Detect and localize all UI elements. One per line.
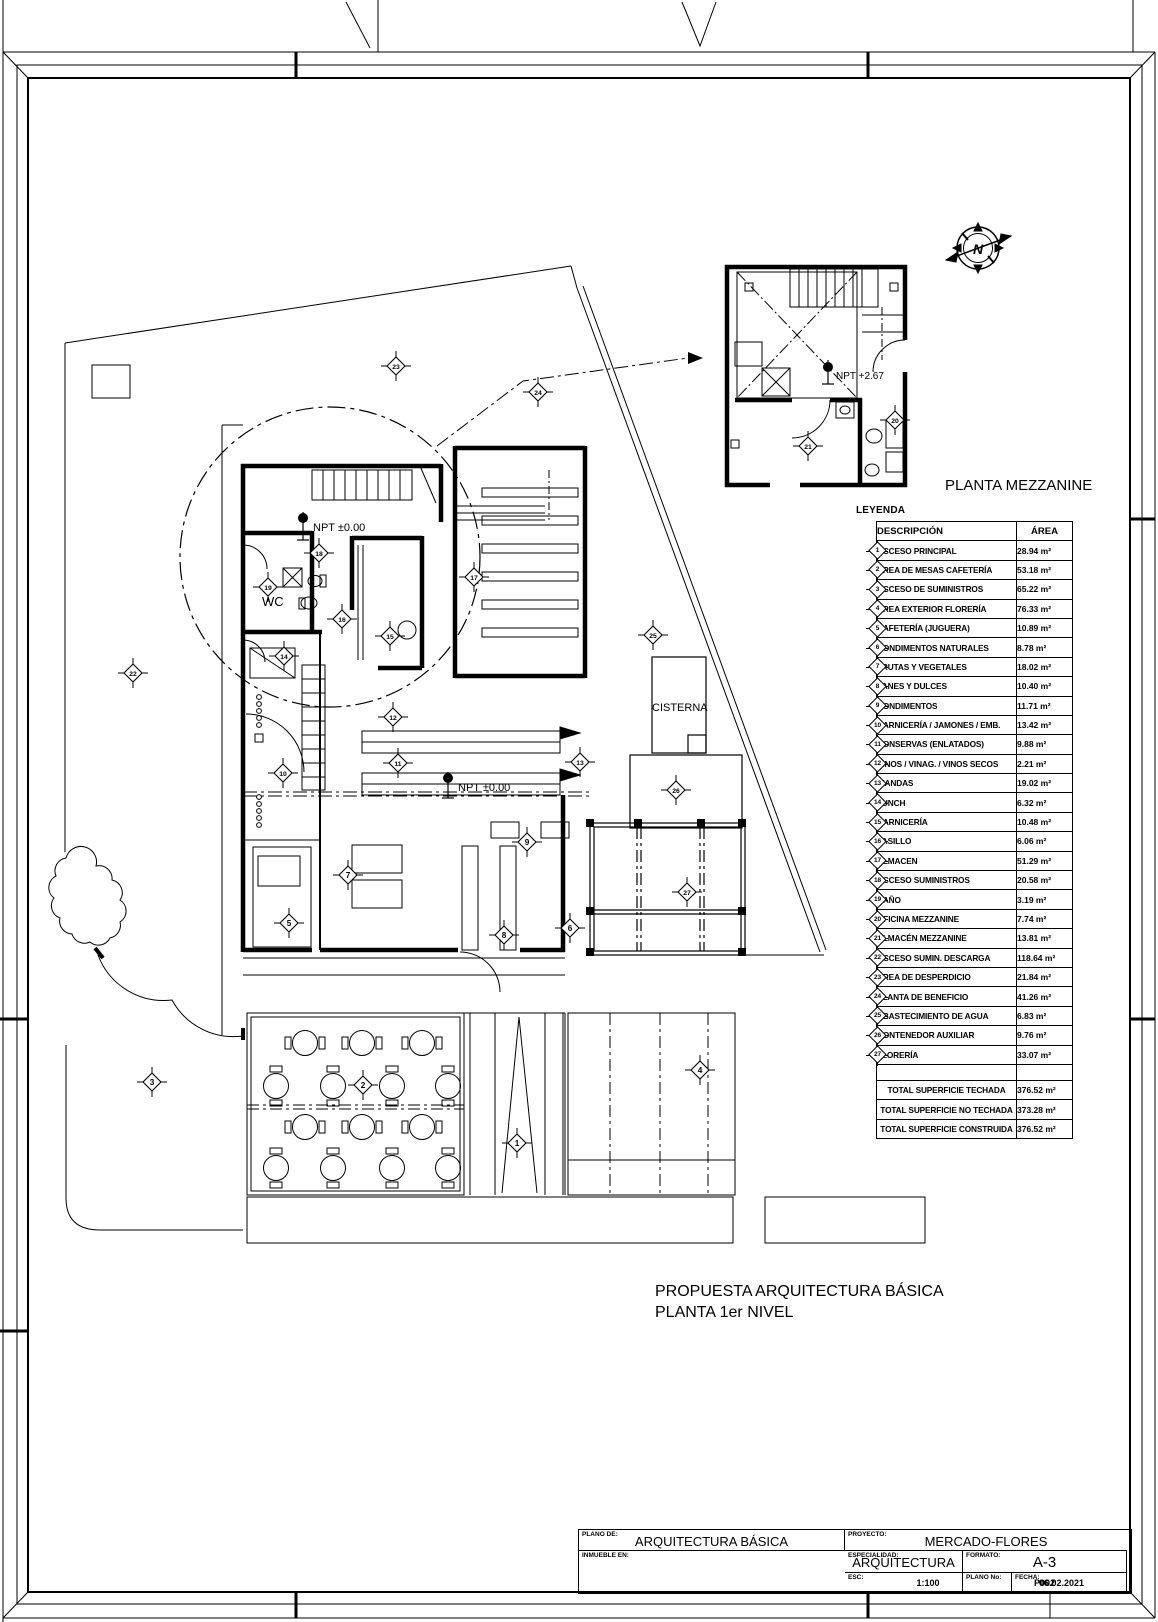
legend-row: 27FLORERÍA33.07 m² [877,1045,1073,1064]
legend-item-label: OFICINA MEZZANINE [877,914,959,924]
svg-text:26: 26 [672,788,680,795]
legend-item-label: PLANTA DE BENEFICIO [877,992,968,1002]
svg-text:18: 18 [315,551,323,558]
legend-item-area: 6.06 m² [1017,832,1073,851]
proyecto-value: MERCADO-FLORES [845,1534,1127,1549]
room-marker-5: 5 [274,908,304,938]
legend-total-row: TOTAL SUPERFICIE CONSTRUIDA376.52 m² [877,1119,1073,1138]
legend-table: DESCRIPCIÓN ÁREA 1ACCESO PRINCIPAL28.94 … [876,521,1073,1139]
plano-de-value: ARQUITECTURA BÁSICA [579,1534,844,1549]
svg-text:20: 20 [891,418,899,425]
legend-item-area: 65.22 m² [1017,580,1073,599]
legend-item-area: 13.42 m² [1017,715,1073,734]
legend-total-area: 373.28 m² [1017,1100,1073,1119]
site-boundary [49,266,826,1230]
legend-item-label: CARNICERÍA / JAMONES / EMB. [877,720,1000,730]
svg-text:11: 11 [394,761,401,768]
legend-item-label: VINOS / VINAG. / VINOS SECOS [877,759,998,769]
room-marker-1: 1 [502,1128,532,1158]
legend-col-descripcion: DESCRIPCIÓN [877,522,1017,541]
svg-text:24: 24 [534,390,542,397]
column-squares [586,819,746,956]
room-marker-3: 3 [137,1067,167,1097]
legend-item-label: CAFETERÍA (JUGUERA) [877,623,970,633]
legend-item-label: ALMACÉN MEZZANINE [877,933,967,943]
svg-text:1: 1 [515,1139,520,1148]
room-marker-4: 4 [685,1055,715,1085]
legend-item-label: ACCESO DE SUMINISTROS [877,584,983,594]
legend-item-area: 2.21 m² [1017,754,1073,773]
npt-label-mezzanine: NPT +2.67 [836,371,884,382]
legend-item-label: CONSERVAS (ENLATADOS) [877,739,984,749]
legend-item-area: 76.33 m² [1017,599,1073,618]
legend-item-area: 21.84 m² [1017,967,1073,986]
legend-item-area: 51.29 m² [1017,851,1073,870]
svg-text:15: 15 [386,634,394,641]
svg-text:2: 2 [361,1081,366,1090]
leader-arrow-icon [688,352,703,364]
room-marker-21: 21 [793,431,823,461]
legend-item-area: 41.26 m² [1017,987,1073,1006]
room-marker-8: 8 [489,920,519,950]
legend-item-area: 6.32 m² [1017,793,1073,812]
legend-row: 19BAÑO3.19 m² [877,890,1073,909]
main-plan-title-line1: PROPUESTA ARQUITECTURA BÁSICA [655,1281,944,1302]
svg-text:4: 4 [698,1066,703,1075]
legend-header-row: DESCRIPCIÓN ÁREA [877,522,1073,541]
legend-item-label: FRUTAS Y VEGETALES [877,662,967,672]
legend-row: 14LUNCH6.32 m² [877,793,1073,812]
room-marker-12: 12 [378,702,408,732]
svg-text:22: 22 [129,671,137,678]
title-block-esc-fecha: ESC: 1:100 FECHA: 06.02.2021 [845,1573,963,1591]
legend-item-area: 10.89 m² [1017,618,1073,637]
legend-total-label: TOTAL SUPERFICIE NO TECHADA [877,1100,1017,1119]
drawing-sheet: 1234567891011121314151617181922232425262… [0,0,1158,1622]
legend-row: 3ACCESO DE SUMINISTROS65.22 m² [877,580,1073,599]
svg-text:16: 16 [338,617,346,624]
stall-arrow-icon [560,769,580,781]
legend-total-area: 376.52 m² [1017,1080,1073,1099]
svg-text:14: 14 [280,654,288,661]
room-marker-15: 15 [375,621,405,651]
room-marker-2: 2 [348,1070,378,1100]
legend-item-area: 3.19 m² [1017,890,1073,909]
svg-text:7: 7 [346,871,351,880]
main-plan-title-line2: PLANTA 1er NIVEL [655,1302,944,1323]
room-marker-27: 27 [672,877,702,907]
npt-label-1: NPT ±0.00 [313,522,365,534]
legend-row: 10CARNICERÍA / JAMONES / EMB.13.42 m² [877,715,1073,734]
plano-no-value: P002 [963,1578,1126,1588]
legend-item-area: 18.02 m² [1017,657,1073,676]
legend-item-area: 20.58 m² [1017,871,1073,890]
svg-text:8: 8 [502,931,507,940]
building-walls [241,446,585,952]
legend-row: 22ACCESO SUMIN. DESCARGA118.64 m² [877,948,1073,967]
road-band [247,1197,733,1243]
title-block-plano-de: PLANO DE: ARQUITECTURA BÁSICA [579,1530,845,1551]
legend-item-label: ÁREA DE DESPERDICIO [877,972,971,982]
svg-text:19: 19 [264,585,272,592]
room-marker-23: 23 [381,351,411,381]
legend-item-area: 11.71 m² [1017,696,1073,715]
legend-row: 7FRUTAS Y VEGETALES18.02 m² [877,657,1073,676]
ramp-triangle [502,1017,537,1193]
svg-text:25: 25 [649,633,657,640]
legend-item-area: 118.64 m² [1017,948,1073,967]
legend-item-label: ÁREA EXTERIOR FLORERÍA [877,604,986,614]
legend-item-label: ACCESO PRINCIPAL [877,546,957,556]
legend-item-area: 7.74 m² [1017,909,1073,928]
legend-row: 13VIANDAS19.02 m² [877,774,1073,793]
mezzanine-plan-title: PLANTA MEZZANINE [945,477,1092,494]
building-fixtures [243,466,590,992]
legend-total-area: 376.52 m² [1017,1119,1073,1138]
room-marker-24: 24 [523,377,553,407]
title-block-proyecto: PROYECTO: MERCADO-FLORES [845,1530,1127,1551]
title-block: PLANO DE: ARQUITECTURA BÁSICA PROYECTO: … [578,1529,1132,1594]
legend-item-label: ÁREA DE MESAS CAFETERÍA [877,565,992,575]
room-marker-6: 6 [555,913,585,943]
legend-total-label: TOTAL SUPERFICIE CONSTRUIDA [877,1119,1017,1138]
legend-row: 9CONDIMENTOS11.71 m² [877,696,1073,715]
main-plan-title: PROPUESTA ARQUITECTURA BÁSICA PLANTA 1er… [655,1281,944,1323]
room-marker-26: 26 [661,775,691,805]
legend-row: 23ÁREA DE DESPERDICIO21.84 m² [877,967,1073,986]
legend-row: 4ÁREA EXTERIOR FLORERÍA76.33 m² [877,599,1073,618]
legend-item-area: 10.40 m² [1017,677,1073,696]
legend-row: 24PLANTA DE BENEFICIO41.26 m² [877,987,1073,1006]
legend-row: 11CONSERVAS (ENLATADOS)9.88 m² [877,735,1073,754]
formato-value: A-3 [963,1554,1126,1571]
legend-row: 25ABASTECIMIENTO DE AGUA6.83 m² [877,1006,1073,1025]
title-block-formato: FORMATO: A-3 [963,1551,1127,1573]
legend-row: 2ÁREA DE MESAS CAFETERÍA53.18 m² [877,560,1073,579]
legend-row: 16PASILLO6.06 m² [877,832,1073,851]
legend-row: 1ACCESO PRINCIPAL28.94 m² [877,541,1073,560]
room-marker-17: 17 [459,562,489,592]
legend-item-area: 28.94 m² [1017,541,1073,560]
legend-item-area: 19.02 m² [1017,774,1073,793]
legend-row: 15CARNICERÍA10.48 m² [877,812,1073,831]
room-marker-18: 18 [304,538,334,568]
legend-item-label: ABASTECIMIENTO DE AGUA [877,1011,988,1021]
legend-row: 20OFICINA MEZZANINE7.74 m² [877,909,1073,928]
north-letter: N [973,241,984,257]
legend-row: 17ALMACEN51.29 m² [877,851,1073,870]
npt-label-2: NPT ±0.00 [458,782,510,794]
svg-text:6: 6 [568,924,573,933]
svg-text:3: 3 [150,1078,155,1087]
legend-spacer-row [877,1064,1073,1080]
legend-item-area: 13.81 m² [1017,929,1073,948]
legend-row: 21ALMACÉN MEZZANINE13.81 m² [877,929,1073,948]
legend-item-area: 33.07 m² [1017,1045,1073,1064]
room-marker-25: 25 [638,620,668,650]
inmueble-en-label: INMUEBLE EN: [582,1552,629,1559]
legend-total-label: TOTAL SUPERFICIE TECHADA [877,1080,1017,1099]
legend-item-label: CONTENEDOR AUXILIAR [877,1030,974,1040]
svg-text:9: 9 [525,838,530,847]
svg-text:23: 23 [392,364,400,371]
legend-row: 18ACCESO SUMINISTROS20.58 m² [877,871,1073,890]
legend-col-area: ÁREA [1017,522,1073,541]
legend-item-area: 9.76 m² [1017,1026,1073,1045]
legend-row: 6CONDIMENTOS NATURALES8.78 m² [877,638,1073,657]
svg-text:21: 21 [804,444,812,451]
svg-text:27: 27 [683,890,691,897]
legend-item-label: ACCESO SUMIN. DESCARGA [877,953,990,963]
room-marker-10: 10 [268,758,298,788]
svg-text:13: 13 [576,760,584,767]
legend-item-area: 9.88 m² [1017,735,1073,754]
legend-total-row: TOTAL SUPERFICIE NO TECHADA373.28 m² [877,1100,1073,1119]
legend-row: 8PANES Y DULCES10.40 m² [877,677,1073,696]
legend-row: 5CAFETERÍA (JUGUERA)10.89 m² [877,618,1073,637]
legend-item-area: 8.78 m² [1017,638,1073,657]
terrace-area [247,1013,925,1243]
legend-item-area: 53.18 m² [1017,560,1073,579]
wc-label: WC [262,594,284,609]
legend-row: 12VINOS / VINAG. / VINOS SECOS2.21 m² [877,754,1073,773]
legend-row: 26CONTENEDOR AUXILIAR9.76 m² [877,1026,1073,1045]
title-block-especialidad: ESPECIALIDAD: ARQUITECTURA [845,1551,963,1573]
title-block-plano-no: PLANO No: P002 [963,1573,1127,1591]
legend-item-label: ACCESO SUMINISTROS [877,875,970,885]
especialidad-value: ARQUITECTURA [845,1555,962,1570]
legend-marker-diamond-icon: 27 [866,1044,888,1066]
legend-item-area: 6.83 m² [1017,1006,1073,1025]
stall-arrow-icon [560,727,580,739]
legend-total-row: TOTAL SUPERFICIE TECHADA376.52 m² [877,1080,1073,1099]
room-marker-7: 7 [333,860,363,890]
svg-text:10: 10 [279,771,287,778]
room-marker-22: 22 [118,658,148,688]
legend-title: LEYENDA [856,505,905,516]
svg-text:5: 5 [287,919,292,928]
svg-text:12: 12 [389,715,397,722]
legend-item-area: 10.48 m² [1017,812,1073,831]
road-band-right [765,1197,925,1243]
legend-item-label: CONDIMENTOS NATURALES [877,643,989,653]
svg-text:17: 17 [470,575,478,582]
cisterna-label: CISTERNA [652,702,708,714]
title-block-inmueble-en: INMUEBLE EN: [579,1551,845,1591]
